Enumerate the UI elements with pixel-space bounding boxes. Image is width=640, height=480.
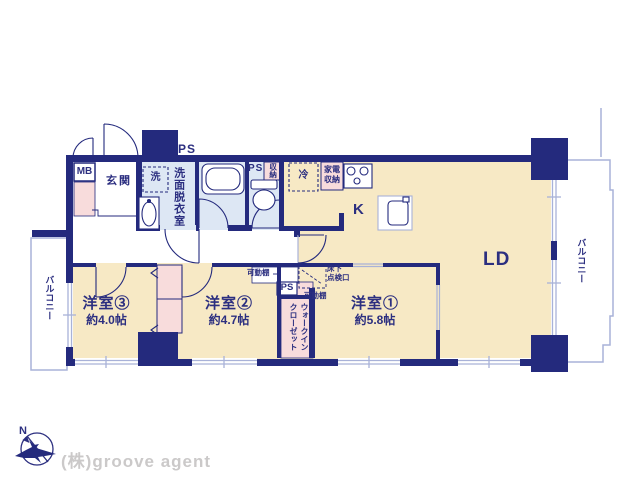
label-floor-hatch: 床下 点検口	[327, 265, 350, 282]
floor-plan-page: PS MB 玄関 洗 洗面脱衣室 PS 収納 冷 家電 収納 K LD バルコニ…	[0, 0, 640, 480]
washbasin-faucet	[148, 200, 151, 203]
wall-room2-wic	[277, 267, 281, 358]
wall-kitchen	[283, 226, 344, 231]
corridor-floor	[96, 230, 298, 263]
compass-icon	[15, 433, 56, 465]
wall-bottom-e	[520, 359, 531, 366]
wall-room1-top-b	[383, 263, 437, 267]
label-room3-size: 約4.0帖	[73, 314, 140, 328]
wall-toilet-kitchen	[279, 162, 284, 231]
pillar-top-right	[531, 138, 568, 180]
entrance-floor	[96, 162, 136, 230]
wall-room3-top-a	[66, 263, 96, 267]
label-room2-size: 約4.7帖	[194, 314, 264, 328]
label-shelf-room1: 可動棚	[304, 292, 327, 301]
wall-room1-ld-upper	[436, 263, 440, 285]
label-entrance: 玄関	[98, 175, 140, 188]
kitchen-faucet	[403, 197, 409, 202]
wall-room2-top	[212, 263, 298, 267]
wall-bottom-c	[257, 359, 338, 366]
toilet-tank	[251, 180, 277, 189]
wall-bottom-a	[66, 359, 75, 366]
label-ps-top: PS	[178, 143, 196, 157]
label-ps-wic: PS	[277, 283, 297, 294]
wall-room1-ld-lower	[436, 330, 440, 359]
toilet-bowl	[253, 190, 275, 210]
label-room3-name: 洋室③	[73, 295, 140, 312]
pillar-bottom-right	[531, 335, 568, 372]
label-washroom: 洗面脱衣室	[172, 167, 185, 227]
wall-washroom-bath	[195, 162, 199, 225]
label-kitchen: K	[353, 201, 365, 218]
window-right-mullion	[551, 241, 557, 260]
pillar-bottom-mid	[138, 332, 178, 366]
entrance-closet	[74, 182, 95, 216]
label-room1-size: 約5.8帖	[340, 314, 410, 328]
label-balcony-left: バルコニー	[44, 275, 54, 320]
wall-bottom-b	[178, 359, 192, 366]
label-ps-toilet: PS	[248, 163, 263, 175]
balcony-right-area	[568, 108, 613, 362]
wall-bottom-d	[400, 359, 458, 366]
door-entrance	[104, 124, 138, 158]
wall-top	[66, 155, 531, 162]
company-name: (株)groove agent	[61, 447, 211, 472]
label-appliance-storage: 家電 収納	[321, 165, 343, 185]
label-washer: 洗	[143, 172, 168, 184]
wall-balcony-stub	[32, 230, 66, 237]
floor-plan-drawing	[0, 0, 640, 480]
label-room1-name: 洋室①	[340, 295, 410, 312]
ps-shaft	[142, 130, 178, 162]
compass-north-label: N	[19, 425, 27, 437]
label-toilet-storage: 収納	[268, 163, 277, 178]
wall-room3-top-b	[126, 263, 157, 267]
label-balcony-right: バルコニー	[576, 238, 586, 283]
wall-kitchen-stub	[339, 213, 344, 231]
wall-bath-bottom	[228, 225, 252, 231]
label-room2-name: 洋室②	[194, 295, 264, 312]
label-mb: MB	[74, 166, 95, 178]
label-shelf-corridor: 可動棚	[247, 269, 270, 278]
label-fridge: 冷	[289, 170, 318, 182]
kitchen-sink	[388, 201, 408, 225]
label-living-dining: LD	[483, 249, 510, 271]
label-wic: ウォークイン クローゼット	[288, 303, 310, 351]
